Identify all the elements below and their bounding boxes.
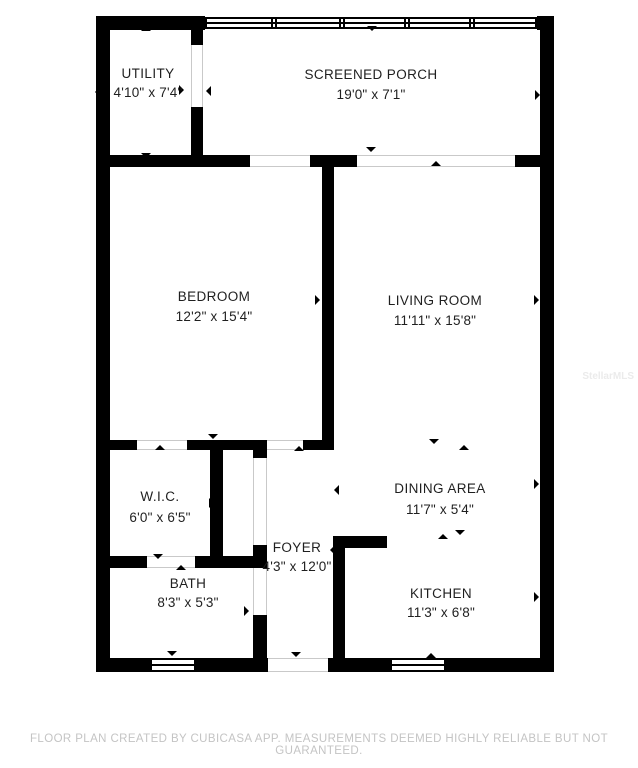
- room-label-living: LIVING ROOM: [388, 294, 482, 308]
- measure-arrow: [337, 593, 342, 603]
- measure-arrow: [206, 86, 211, 96]
- wall: [195, 556, 258, 568]
- wall: [253, 615, 267, 672]
- measure-arrow: [209, 161, 219, 166]
- window-mullion: [404, 19, 406, 27]
- measure-arrow: [141, 153, 151, 158]
- room-label-kitchen: KITCHEN: [410, 587, 472, 601]
- window-mullion: [408, 19, 410, 27]
- room-dims-dining: 11'7" x 5'4": [406, 503, 474, 517]
- window-mullion: [343, 19, 345, 27]
- room-dims-foyer: 4'3" x 12'0": [263, 560, 332, 574]
- window-symbol: [150, 658, 196, 672]
- measure-arrow: [431, 161, 441, 166]
- measure-arrow: [426, 653, 436, 658]
- measure-arrow: [327, 295, 332, 305]
- measure-arrow: [294, 446, 304, 451]
- room-label-foyer: FOYER: [273, 541, 322, 555]
- wall: [191, 16, 203, 45]
- wall: [303, 440, 322, 450]
- measure-arrow: [167, 651, 177, 656]
- measure-arrow: [330, 545, 335, 555]
- floor-plan: UTILITY4'10" x 7'4"SCREENED PORCH19'0" x…: [0, 0, 638, 768]
- wall: [333, 536, 345, 672]
- room-dims-living: 11'11" x 15'8": [394, 314, 476, 328]
- room-dims-kitchen: 11'3" x 6'8": [407, 606, 475, 620]
- window-midline: [152, 664, 194, 666]
- door-opening: [253, 458, 267, 545]
- window-midline: [392, 664, 444, 666]
- door-opening: [268, 658, 328, 672]
- measure-arrow: [153, 554, 163, 559]
- wall: [253, 440, 267, 458]
- measure-arrow: [459, 445, 469, 450]
- measure-arrow: [141, 26, 151, 31]
- measure-arrow: [534, 479, 539, 489]
- room-label-porch: SCREENED PORCH: [304, 68, 437, 82]
- room-label-bedroom: BEDROOM: [178, 290, 251, 304]
- measure-arrow: [98, 295, 103, 305]
- room-dims-porch: 19'0" x 7'1": [337, 88, 406, 102]
- room-label-dining: DINING AREA: [394, 482, 485, 496]
- measure-arrow: [209, 498, 214, 508]
- door-opening: [253, 568, 267, 615]
- measure-arrow: [367, 26, 377, 31]
- wall: [322, 160, 334, 450]
- measure-arrow: [208, 434, 218, 439]
- door-opening: [191, 45, 203, 107]
- wall: [540, 16, 554, 672]
- footer-disclaimer: FLOOR PLAN CREATED BY CUBICASA APP. MEAS…: [0, 733, 638, 757]
- measure-arrow: [534, 295, 539, 305]
- measure-arrow: [429, 439, 439, 444]
- window-mullion: [339, 19, 341, 27]
- wall: [96, 440, 137, 450]
- room-label-utility: UTILITY: [121, 67, 174, 81]
- measure-arrow: [438, 534, 448, 539]
- wall: [96, 658, 150, 672]
- measure-arrow: [98, 498, 103, 508]
- room-dims-utility: 4'10" x 7'4": [114, 86, 183, 100]
- measure-arrow: [98, 607, 103, 617]
- measure-arrow: [334, 485, 339, 495]
- measure-arrow: [534, 592, 539, 602]
- measure-arrow: [455, 530, 465, 535]
- room-dims-bedroom: 12'2" x 15'4": [176, 310, 253, 324]
- door-opening: [250, 155, 310, 167]
- window-mullion: [271, 19, 273, 27]
- wall: [96, 556, 147, 568]
- wall: [96, 155, 250, 167]
- wall: [96, 16, 110, 672]
- wall: [446, 658, 554, 672]
- measure-arrow: [535, 90, 540, 100]
- measure-arrow: [244, 606, 249, 616]
- room-dims-bath: 8'3" x 5'3": [157, 596, 218, 610]
- measure-arrow: [315, 295, 320, 305]
- room-label-wic: W.I.C.: [140, 490, 179, 504]
- window-mullion: [275, 19, 277, 27]
- measure-arrow: [366, 147, 376, 152]
- measure-arrow: [155, 445, 165, 450]
- window-mullion: [469, 19, 471, 27]
- measure-arrow: [291, 652, 301, 657]
- wall: [515, 155, 554, 167]
- window-symbol: [390, 658, 446, 672]
- measure-arrow: [254, 545, 259, 555]
- watermark: StellarMLS: [582, 371, 634, 382]
- window-mullion: [473, 19, 475, 27]
- room-label-bath: BATH: [170, 577, 207, 591]
- room-dims-wic: 6'0" x 6'5": [129, 511, 190, 525]
- measure-arrow: [176, 565, 186, 570]
- window-midline: [207, 22, 535, 24]
- measure-arrow: [95, 87, 100, 97]
